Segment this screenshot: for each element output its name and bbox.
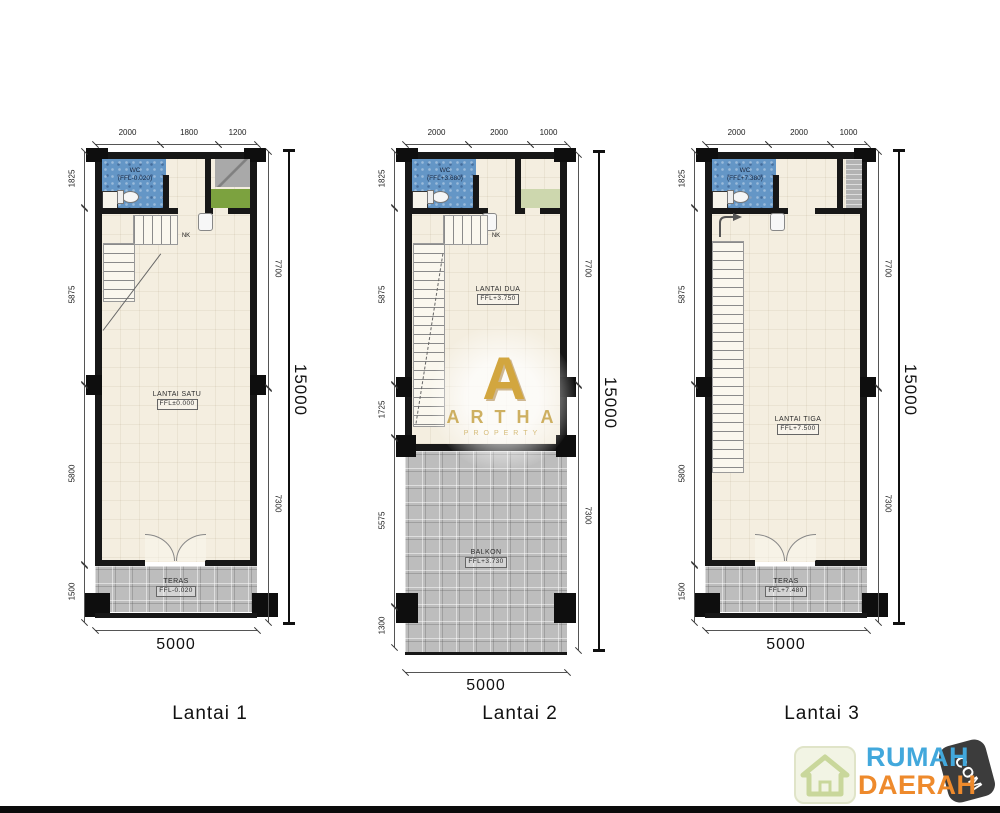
dim-label: 5875: [378, 275, 387, 315]
sink-icon: [198, 213, 213, 231]
wc-name: WC: [440, 167, 451, 174]
toilet-tank: [727, 190, 734, 204]
wc-ffl: (FFL+7.380): [727, 175, 763, 182]
dim-label-overall: 15000: [900, 360, 920, 420]
dim-line: [394, 607, 395, 647]
wc-label: WC (FFL-0.020): [104, 167, 166, 184]
wall: [473, 175, 479, 208]
dim-line: [578, 155, 579, 385]
dim-label-width: 5000: [126, 636, 226, 654]
porch-name: BALKON: [471, 549, 502, 556]
dim-label: 1500: [678, 572, 687, 612]
room-name: LANTAI SATU: [153, 391, 201, 398]
house-icon: [794, 746, 856, 804]
dim-line: [405, 144, 468, 145]
dim-label: 7300: [274, 484, 283, 524]
stair-upper-run: [133, 215, 178, 245]
column-pier: [396, 435, 416, 457]
column-pier: [86, 375, 102, 395]
dim-label: 2000: [468, 128, 530, 137]
room-label: LANTAI TIGA FFL+7.500: [748, 415, 848, 435]
watermark-title: ARTHA: [413, 407, 598, 428]
watermark-letter: A: [476, 350, 532, 408]
dim-label: 1825: [68, 159, 77, 199]
balkon-edge: [405, 652, 567, 655]
wall: [95, 208, 178, 214]
dim-line: [878, 388, 879, 622]
wall: [95, 152, 102, 566]
dim-line: [95, 630, 257, 631]
dim-label: 7700: [274, 249, 283, 289]
dim-line: [394, 385, 395, 438]
shower-area: [215, 159, 250, 187]
dim-label: 1500: [68, 572, 77, 612]
plan-caption: Lantai 3: [762, 703, 882, 725]
porch-label: BALKON FFL+3.730: [436, 548, 536, 568]
dim-label: 1200: [218, 128, 257, 137]
wall: [228, 208, 257, 214]
dim-line: [394, 208, 395, 385]
dim-line: [84, 152, 85, 208]
dim-label: 2000: [768, 128, 830, 137]
dim-label: 7300: [584, 496, 593, 536]
dim-label: 5575: [378, 501, 387, 541]
toilet-icon: [732, 191, 749, 203]
dim-line: [268, 152, 269, 388]
stair-upper-run: [443, 215, 488, 245]
dim-line: [218, 144, 257, 145]
corner-post: [396, 593, 418, 623]
wall: [815, 208, 867, 214]
wc-name: WC: [740, 167, 751, 174]
dim-line: [394, 152, 395, 208]
bottom-border-bar: [0, 806, 1000, 813]
wall: [773, 175, 779, 208]
stair-direction-arrow: [714, 213, 744, 239]
dim-label-width: 5000: [436, 677, 536, 695]
wall: [205, 159, 211, 208]
room-name: LANTAI TIGA: [775, 416, 822, 423]
wall: [860, 152, 867, 566]
plan-caption: Lantai 1: [150, 703, 270, 725]
dim-label: 2000: [705, 128, 768, 137]
column-pier: [396, 377, 412, 397]
porch-label: TERAS FFL-0.020: [126, 577, 226, 597]
wc-label: WC (FFL+7.380): [714, 167, 776, 184]
wall: [405, 152, 412, 450]
dim-line: [468, 144, 530, 145]
wall: [405, 152, 567, 159]
dim-line: [530, 144, 567, 145]
dim-label: 7700: [884, 249, 893, 289]
toilet-tank: [427, 190, 434, 204]
dim-line: [95, 144, 160, 145]
wall: [95, 152, 257, 159]
dim-label: 1000: [830, 128, 867, 137]
brand-logo: .COM RUMAH DAERAH: [790, 738, 1000, 808]
dim-line: [705, 144, 768, 145]
room-label: LANTAI DUA FFL+3.750: [448, 285, 548, 305]
dim-line: [394, 438, 395, 607]
wall: [540, 208, 567, 214]
dim-label: 1000: [530, 128, 567, 137]
corner-pier: [554, 148, 576, 162]
dim-label: 1725: [378, 390, 387, 430]
dim-label-overall: 15000: [600, 373, 620, 433]
floorplan-sheet: 2000 1800 1200 WC (FFL-0.020): [0, 0, 1000, 813]
dim-label: 5875: [678, 275, 687, 315]
wall: [95, 613, 257, 618]
wall: [515, 208, 525, 214]
watermark-subtitle: PROPERTY: [443, 430, 563, 437]
toilet-tank: [117, 190, 124, 204]
room-ffl: FFL±0.000: [157, 399, 198, 409]
dim-line: [84, 208, 85, 385]
room-ffl: FFL+7.500: [777, 424, 818, 434]
wall: [405, 208, 488, 214]
dim-line: [84, 565, 85, 622]
porch-ffl: FFL+7.480: [765, 586, 806, 596]
dim-line: [878, 152, 879, 388]
wall: [515, 159, 521, 214]
stair-run: [712, 241, 744, 473]
dim-label: 1825: [378, 159, 387, 199]
dim-label: 1300: [378, 606, 387, 646]
brand-word-1: RUMAH: [866, 742, 969, 773]
wall: [705, 613, 867, 618]
dim-label: 2000: [95, 128, 160, 137]
dim-label: 1800: [160, 128, 218, 137]
dim-label: 5800: [68, 454, 77, 494]
dim-label: 2000: [405, 128, 468, 137]
porch-ffl: FFL-0.020: [156, 586, 196, 596]
dim-line: [694, 385, 695, 565]
room-label: LANTAI SATU FFL±0.000: [127, 390, 227, 410]
column-pier: [696, 377, 712, 397]
wall: [815, 560, 867, 566]
dim-line: [830, 144, 867, 145]
column-pier: [860, 377, 876, 397]
dim-line: [768, 144, 830, 145]
dim-label: 7700: [584, 249, 593, 289]
planter: [521, 189, 560, 208]
dim-label: 1825: [678, 159, 687, 199]
plan-caption: Lantai 2: [460, 703, 580, 725]
dim-label: 5875: [68, 275, 77, 315]
wall: [95, 560, 145, 566]
wall: [250, 152, 257, 566]
room-ffl: FFL+3.750: [477, 294, 518, 304]
dim-label: 5800: [678, 454, 687, 494]
toilet-icon: [432, 191, 449, 203]
shaft-area: [846, 159, 862, 208]
room-name: LANTAI DUA: [476, 286, 521, 293]
floorplan-lantai-3: 2000 2000 1000 WC (FFL+7.380): [670, 125, 930, 737]
wall: [705, 560, 755, 566]
corner-post: [554, 593, 576, 623]
wc-ffl: (FFL+3.680): [427, 175, 463, 182]
wc-ffl: (FFL-0.020): [118, 175, 152, 182]
planter: [211, 189, 250, 208]
dim-line: [694, 565, 695, 622]
wc-label: WC (FFL+3.680): [414, 167, 476, 184]
dim-label-overall: 15000: [290, 360, 310, 420]
dim-label: 7300: [884, 484, 893, 524]
column-pier: [250, 375, 266, 395]
stair-note: NK: [488, 233, 504, 239]
porch-name: TERAS: [163, 578, 188, 585]
toilet-icon: [122, 191, 139, 203]
wall: [205, 560, 257, 566]
dim-line: [694, 152, 695, 208]
porch-name: TERAS: [773, 578, 798, 585]
stair-note: NK: [178, 233, 194, 239]
wall: [705, 152, 712, 566]
dim-line: [84, 385, 85, 565]
sink-icon: [770, 213, 785, 231]
wc-name: WC: [130, 167, 141, 174]
porch-label: TERAS FFL+7.480: [736, 577, 836, 597]
dim-line: [160, 144, 218, 145]
dim-line: [405, 672, 567, 673]
dim-label-width: 5000: [736, 636, 836, 654]
floorplan-lantai-1: 2000 1800 1200 WC (FFL-0.020): [60, 125, 320, 737]
porch-ffl: FFL+3.730: [465, 557, 506, 567]
dim-line: [694, 208, 695, 385]
dim-line: [268, 388, 269, 622]
brand-word-2: DAERAH: [858, 770, 977, 801]
wall: [837, 159, 843, 208]
wall: [705, 152, 867, 159]
dim-line: [705, 630, 867, 631]
